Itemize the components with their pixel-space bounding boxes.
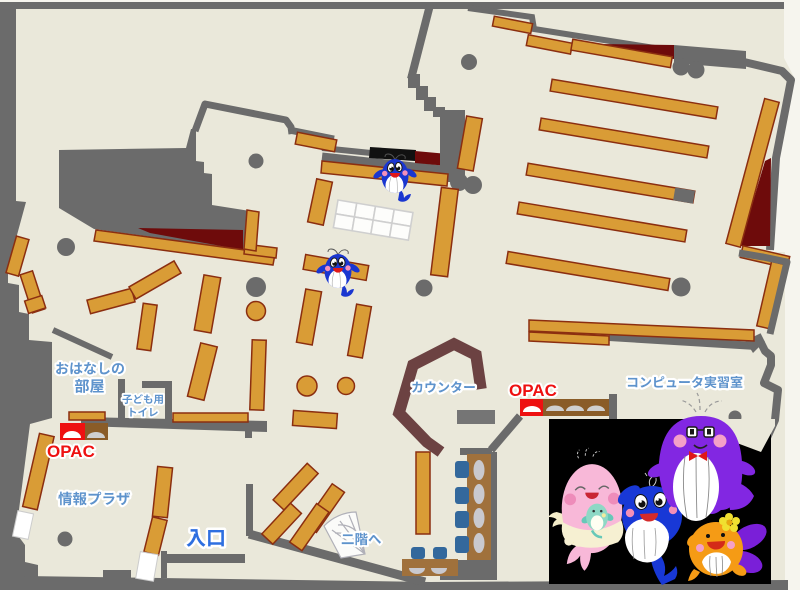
svg-text:OPAC: OPAC xyxy=(509,381,557,400)
svg-text:OPAC: OPAC xyxy=(47,442,95,461)
